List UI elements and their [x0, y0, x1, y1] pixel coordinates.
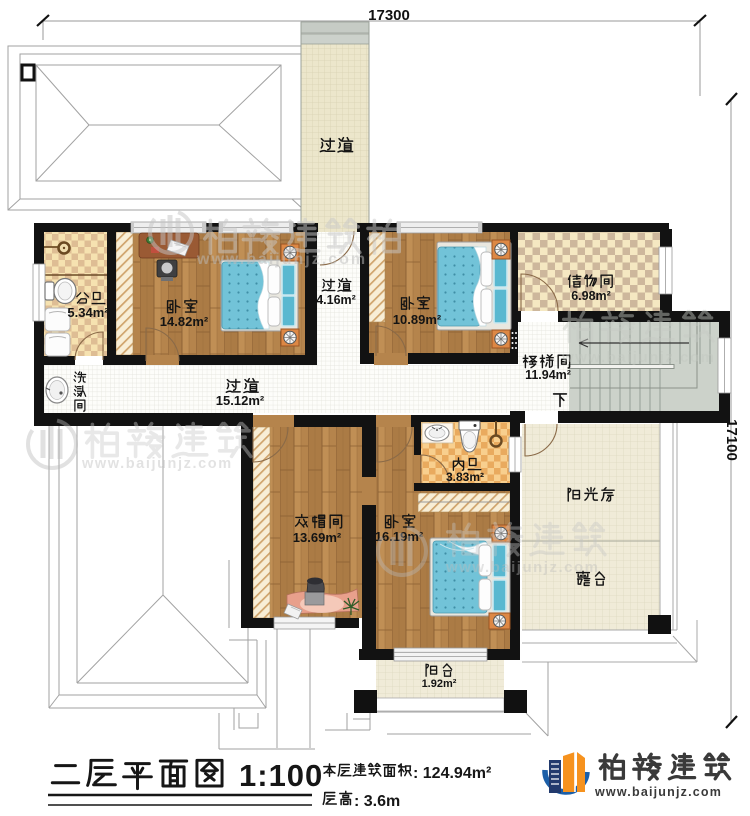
svg-text:4.16m²: 4.16m² — [316, 293, 356, 307]
svg-text:5.34m²: 5.34m² — [67, 305, 109, 320]
svg-text:6.98m²: 6.98m² — [571, 289, 611, 303]
svg-text:17100: 17100 — [723, 419, 740, 461]
svg-text:15.12m²: 15.12m² — [216, 393, 265, 408]
svg-text:13.69m²: 13.69m² — [293, 530, 342, 545]
svg-text:www.baijunjz.com: www.baijunjz.com — [81, 456, 233, 472]
svg-text:17300: 17300 — [368, 7, 410, 24]
svg-text:11.94m²: 11.94m² — [525, 368, 571, 382]
svg-text:14.82m²: 14.82m² — [160, 314, 209, 329]
svg-text:3.83m²: 3.83m² — [446, 470, 484, 484]
svg-text:www.baijunjz.com: www.baijunjz.com — [196, 251, 367, 268]
svg-text:1.92m²: 1.92m² — [422, 678, 457, 690]
svg-text:www.baijunjz.com: www.baijunjz.com — [594, 785, 722, 799]
svg-text:: 124.94m²: : 124.94m² — [413, 765, 491, 782]
svg-text:1:100: 1:100 — [239, 758, 323, 793]
svg-text:www.baijunjz.com: www.baijunjz.com — [445, 559, 599, 576]
svg-text:www.baijunjz.com: www.baijunjz.com — [561, 349, 715, 366]
svg-text:: 3.6m: : 3.6m — [354, 793, 400, 810]
svg-text:10.89m²: 10.89m² — [393, 312, 442, 327]
